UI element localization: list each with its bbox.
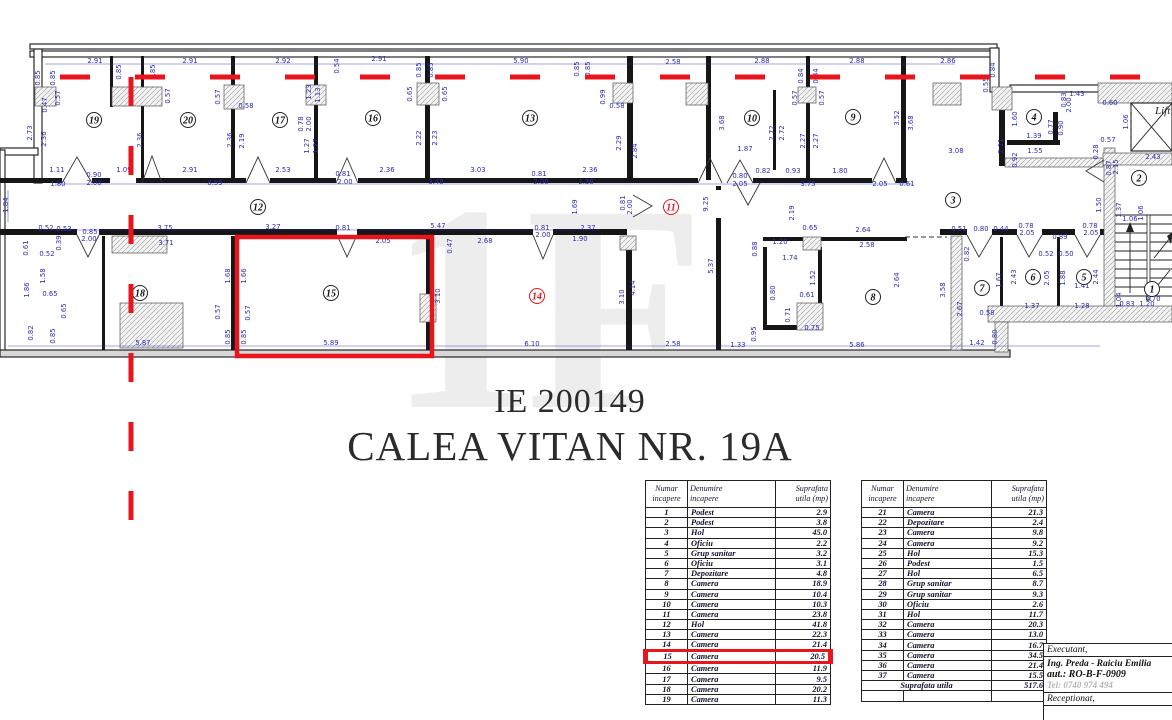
- table-cell: 21.3: [992, 508, 1047, 518]
- table-cell: Podest: [904, 558, 992, 568]
- dimension-label: 1.60: [1011, 111, 1019, 126]
- table-row: 8Camera18.9: [646, 579, 831, 589]
- table-row: 29Grup sanitar9.3: [862, 589, 1047, 599]
- table-cell: 3: [646, 528, 688, 538]
- dimension-label: 1.66: [240, 268, 248, 283]
- table-cell: 36: [862, 660, 904, 670]
- table-cell: 2.6: [992, 599, 1047, 609]
- table-cell: Camera: [688, 640, 776, 651]
- dimension-label: 2.05: [872, 180, 887, 188]
- dimension-label: 0.71: [784, 307, 792, 322]
- dimension-label: 2.73: [26, 125, 34, 140]
- total-row: Suprafata utila517.6: [862, 681, 1047, 691]
- room-number-label: 13: [525, 113, 535, 124]
- dimension-label: 1.69: [571, 199, 579, 214]
- table-cell: 34.5: [992, 650, 1047, 660]
- table-row: 22Depozitare2.4: [862, 518, 1047, 528]
- dimension-label: 0.57: [164, 88, 172, 103]
- table-cell: 7: [646, 569, 688, 579]
- total-label: Suprafata utila: [862, 681, 992, 691]
- dimension-label: 2.36: [379, 166, 394, 174]
- dimension-label: 2.15: [1112, 159, 1120, 174]
- dimension-label: 0.80: [769, 285, 777, 300]
- dimension-label: 0.60: [1102, 99, 1117, 107]
- dimension-label: 5.37: [707, 258, 715, 273]
- table-cell: 5: [646, 548, 688, 558]
- dimension-label: 0.85: [573, 61, 581, 76]
- table-cell: 8.7: [992, 579, 1047, 589]
- table-row: 23Camera9.8: [862, 528, 1047, 538]
- dimension-label: 6.10: [524, 340, 539, 348]
- table-row: 21Camera21.3: [862, 508, 1047, 518]
- table-cell: 4.8: [776, 569, 831, 579]
- table-row: 24Camera9.2: [862, 538, 1047, 548]
- table-row: 34Camera16.7: [862, 640, 1047, 650]
- dimension-label: 3.68: [907, 115, 915, 130]
- table-cell: 13: [646, 630, 688, 640]
- dimension-label: 2.91: [182, 57, 197, 65]
- lift-label: Lift: [1154, 105, 1171, 117]
- table-cell: 12: [646, 620, 688, 630]
- table-cell: 14: [646, 640, 688, 651]
- dimension-label: 0.93: [785, 167, 800, 175]
- dimension-label: 0.82: [755, 167, 770, 175]
- dimension-label: 5.90: [513, 57, 528, 65]
- table-cell: 11.3: [776, 694, 831, 704]
- table-cell: 23: [862, 528, 904, 538]
- table-cell: 45.0: [776, 528, 831, 538]
- room-number-label: 15: [326, 288, 336, 299]
- table-cell: 11.7: [992, 609, 1047, 619]
- dimension-label: 2.58: [859, 241, 874, 249]
- dimension-label: 0.44: [993, 225, 1008, 233]
- table-cell: Hol: [688, 620, 776, 630]
- table-cell: 32: [862, 620, 904, 630]
- dimension-label: 0.52: [1038, 250, 1053, 258]
- table-cell: 18: [646, 684, 688, 694]
- dimension-label: 0.88: [751, 241, 759, 256]
- dimension-label: 2.44: [1092, 269, 1100, 284]
- dimension-label: 1.27: [312, 138, 320, 153]
- table-cell: 2.4: [992, 518, 1047, 528]
- table-header-row: Numar incapereDenumire incapereSuprafata…: [646, 481, 831, 508]
- dimension-label: 1.37: [1024, 302, 1039, 310]
- dimension-label: 2.72: [768, 125, 776, 140]
- table-cell: 11: [646, 609, 688, 619]
- dimension-label: 0.61: [22, 240, 30, 255]
- dimension-label: 0.57: [791, 90, 799, 105]
- table-row-highlighted: 15Camera20.5: [646, 651, 831, 663]
- table-cell: 25: [862, 548, 904, 558]
- room-number-label: 8: [871, 292, 876, 303]
- lift-shaft: Lift: [1131, 103, 1172, 151]
- table-cell: Camera: [688, 663, 776, 674]
- dimension-label: 5.87: [135, 339, 150, 347]
- room-number-label: 2: [1136, 173, 1142, 184]
- table-cell: 3.2: [776, 548, 831, 558]
- room-number-label: 9: [851, 112, 856, 123]
- table-row: 30Oficiu2.6: [862, 599, 1047, 609]
- receptionat-label: Receptionat,: [1044, 693, 1172, 706]
- dimension-label: 2.43: [1145, 153, 1160, 161]
- dimension-label: 0.65: [60, 303, 68, 318]
- dimension-label: 0.84: [989, 62, 997, 77]
- dimension-label: 3.10: [618, 289, 626, 304]
- table-cell: 4: [646, 538, 688, 548]
- column-header: Suprafata utila (mp): [776, 481, 831, 508]
- dimension-label: 0.77: [1047, 119, 1055, 134]
- dimension-label: 1.42: [969, 339, 984, 347]
- dimension-label: 2.67: [956, 301, 964, 316]
- dimension-label: 2.36: [136, 132, 144, 147]
- table-cell: Hol: [904, 569, 992, 579]
- dimension-label: 2.27: [799, 133, 807, 148]
- dimension-label: 2.22: [415, 130, 423, 145]
- dimension-label: 2.36: [40, 131, 48, 146]
- dimension-label: 0.75: [804, 324, 819, 332]
- dimension-label: 0.82: [27, 325, 35, 340]
- dimension-label: 1.67: [995, 272, 1003, 287]
- dimension-label: 0.65: [406, 86, 414, 101]
- room-number-label: 11: [666, 202, 675, 213]
- dimension-label: 4.14: [629, 280, 637, 295]
- table-row: 10Camera10.3: [646, 599, 831, 609]
- table-cell: 18.9: [776, 579, 831, 589]
- dimension-label: 2.19: [238, 133, 246, 148]
- dimension-label: 0.52: [38, 224, 53, 232]
- dimension-label: 3.52: [893, 110, 901, 125]
- dimension-label: 0.85: [240, 329, 248, 344]
- dimension-label: 0.80: [973, 225, 988, 233]
- dimension-label: 2.00: [1065, 97, 1073, 112]
- table-cell: 1: [646, 508, 688, 518]
- total-value: 517.6: [992, 681, 1047, 691]
- table-cell: 30: [862, 599, 904, 609]
- dimension-label: 1.06: [1122, 114, 1130, 129]
- table-cell: 9.8: [992, 528, 1047, 538]
- dimension-label: 3.27: [265, 223, 280, 231]
- dimension-label: 0.50: [1058, 250, 1073, 258]
- dimension-label: 1.27: [303, 138, 311, 153]
- table-cell: 35: [862, 650, 904, 660]
- dimension-label: 0.85: [49, 70, 57, 85]
- table-cell: 2.9: [776, 508, 831, 518]
- table-cell: Camera: [904, 650, 992, 660]
- dimension-label: 2.37: [580, 224, 595, 232]
- table-cell: 37: [862, 671, 904, 681]
- table-row: 32Camera20.3: [862, 620, 1047, 630]
- dimension-label: 1.28: [1074, 302, 1089, 310]
- dimension-label: 2.36: [582, 166, 597, 174]
- table-cell: 2.2: [776, 538, 831, 548]
- column-header: Denumire incapere: [688, 481, 776, 508]
- dimension-label: 1.43: [1069, 90, 1084, 98]
- dimension-label: 1.90: [572, 235, 587, 243]
- table-cell: Camera: [904, 671, 992, 681]
- dimension-label: 0.57: [244, 305, 252, 320]
- table-cell: 20.3: [992, 620, 1047, 630]
- dimension-label: 0.61: [799, 291, 814, 299]
- column-header: Suprafata utila (mp): [992, 481, 1047, 508]
- table-row: 19Camera11.3: [646, 694, 831, 704]
- table-row: 35Camera34.5: [862, 650, 1047, 660]
- dimension-label: 2.00: [305, 116, 313, 131]
- dimension-label: 1.50: [1095, 197, 1103, 212]
- table-cell: 2: [646, 518, 688, 528]
- dimension-label: 0.54: [333, 58, 341, 73]
- table-row: 11Camera23.8: [646, 609, 831, 619]
- table-cell: 15.5: [992, 671, 1047, 681]
- dimension-label: 5.89: [323, 339, 338, 347]
- table-cell: Oficiu: [904, 599, 992, 609]
- table-cell: Camera: [904, 630, 992, 640]
- dimension-label: 0.47: [41, 97, 49, 112]
- table-cell: 27: [862, 569, 904, 579]
- table-cell: 10: [646, 599, 688, 609]
- table-row: 2Podest3.8: [646, 518, 831, 528]
- dimension-label: 1.84: [2, 197, 10, 212]
- dimension-label: 2.88: [849, 57, 864, 65]
- dimension-label: 2.00: [86, 179, 101, 187]
- dimension-label: 0.52: [39, 250, 54, 258]
- table-row: 7Depozitare4.8: [646, 569, 831, 579]
- table-cell: Hol: [904, 548, 992, 558]
- dimension-label: 0.99: [599, 89, 607, 104]
- dimension-label: 5.86: [849, 341, 864, 349]
- dimension-label: 0.84: [797, 68, 805, 83]
- table-row: 25Hol15.3: [862, 548, 1047, 558]
- dimension-label: 0.57: [818, 90, 826, 105]
- dimension-label: 1.55: [1027, 147, 1042, 155]
- room-number-label: 6: [1031, 272, 1036, 283]
- phone-number: Tel: 0740 974 494: [1044, 680, 1172, 693]
- table-cell: 6.5: [992, 569, 1047, 579]
- table-cell: 9.5: [776, 674, 831, 684]
- dimension-label: 3.75: [800, 180, 815, 188]
- dimension-label: 0.28: [1092, 144, 1100, 159]
- dimension-label: 2.19: [788, 205, 796, 220]
- address-title: CALEA VITAN NR. 19A: [295, 422, 845, 470]
- dimension-label: 0.92: [1011, 152, 1019, 167]
- dimension-label: 3.48: [428, 178, 443, 186]
- table-cell: 34: [862, 640, 904, 650]
- table-cell: 1.5: [992, 558, 1047, 568]
- dimension-label: 2.27: [812, 133, 820, 148]
- dimension-label: 2.91: [371, 55, 386, 63]
- table-row: 31Hol11.7: [862, 609, 1047, 619]
- dimension-label: 0.82: [963, 246, 971, 261]
- dimension-label: 0.80: [732, 172, 747, 180]
- dimension-label: 2.00: [626, 199, 634, 214]
- dimension-label: 1.74: [782, 254, 797, 262]
- table-cell: 8: [646, 579, 688, 589]
- room-number-label: 5: [1082, 272, 1087, 283]
- table-cell: Camera: [904, 528, 992, 538]
- table-cell: 6: [646, 558, 688, 568]
- table-cell: Hol: [904, 609, 992, 619]
- room-number-label: 10: [747, 113, 757, 124]
- room-number-label: 20: [182, 115, 193, 126]
- dimension-label: 2.05: [732, 180, 747, 188]
- dimension-label: 1.23: [305, 84, 313, 99]
- table-cell: 29: [862, 589, 904, 599]
- table-cell: 17: [646, 674, 688, 684]
- dimension-label: 0.58: [609, 102, 624, 110]
- table-cell: 9: [646, 589, 688, 599]
- dimension-label: 2.11: [997, 138, 1005, 153]
- dimension-label: 0.57: [54, 90, 62, 105]
- column-header: Numar incapere: [646, 481, 688, 508]
- dimension-label: 2.05: [1019, 229, 1034, 237]
- table-cell: Oficiu: [688, 558, 776, 568]
- table-cell: 13.0: [992, 630, 1047, 640]
- table-cell: Grup sanitar: [904, 579, 992, 589]
- dimension-label: 1.33: [730, 341, 745, 349]
- dimension-label: 2.68: [477, 237, 492, 245]
- room-number-label: 4: [1031, 112, 1037, 123]
- table-cell: 19: [646, 694, 688, 704]
- dimension-label: 1.58: [39, 268, 47, 283]
- authorization-number: aut.: RO-B-F-0909: [1044, 669, 1172, 680]
- dimension-label: 2.72: [778, 125, 786, 140]
- dimension-label: 0.58: [238, 102, 253, 110]
- table-row: 36Camera21.4: [862, 660, 1047, 670]
- dimension-label: 2.53: [275, 166, 290, 174]
- room-number-label: 19: [89, 115, 99, 126]
- floor-plan-document: 1F: [0, 0, 1172, 720]
- table-cell: 28: [862, 579, 904, 589]
- dimension-label: 2.64: [893, 272, 901, 287]
- table-row: 18Camera20.2: [646, 684, 831, 694]
- dimension-label: 0.85: [427, 62, 435, 77]
- dimension-label: 0.90: [1057, 120, 1065, 135]
- dimension-label: 0.55: [982, 77, 990, 92]
- table-cell: 21.4: [992, 660, 1047, 670]
- room-number-label: 1: [1150, 284, 1155, 295]
- dimension-label: 2.29: [615, 135, 623, 150]
- table-cell: 20.5: [776, 651, 831, 663]
- dimension-label: 2.88: [754, 57, 769, 65]
- dimension-label: 0.65: [802, 224, 817, 232]
- table-row: 13Camera22.3: [646, 630, 831, 640]
- dimension-label: 0.57: [214, 89, 222, 104]
- table-cell: Depozitare: [688, 569, 776, 579]
- table-cell: 22.3: [776, 630, 831, 640]
- table-cell: [992, 691, 1047, 701]
- room-number-label: 16: [368, 113, 378, 124]
- executant-label: Executant,: [1044, 644, 1172, 657]
- table-row: 16Camera11.9: [646, 663, 831, 674]
- table-cell: Oficiu: [688, 538, 776, 548]
- dimension-label: 1.86: [23, 282, 31, 297]
- empty-row: [862, 691, 1047, 701]
- table-cell: 33: [862, 630, 904, 640]
- dimension-label: 2.05: [1043, 270, 1051, 285]
- room-table-left: Numar incapereDenumire incapereSuprafata…: [643, 480, 833, 705]
- dimension-label: 3.71: [158, 239, 173, 247]
- table-row: 14Camera21.4: [646, 640, 831, 651]
- dimension-label: 3.10: [434, 288, 442, 303]
- dimension-label: 1.80: [832, 167, 847, 175]
- table-cell: 41.8: [776, 620, 831, 630]
- dimension-label: 2.00: [81, 235, 96, 243]
- table-cell: Camera: [688, 579, 776, 589]
- dimension-label: 0.90: [86, 171, 101, 179]
- dimension-label: 3.68: [718, 115, 726, 130]
- dimension-label: 1.11: [49, 166, 64, 174]
- dimension-label: 0.95: [750, 326, 758, 341]
- dimension-label: 0.53: [56, 225, 71, 233]
- dimension-label: 2.00: [535, 231, 550, 239]
- room-number-label: 14: [532, 291, 542, 302]
- table-cell: 15.3: [992, 548, 1047, 558]
- table-cell: 10.4: [776, 589, 831, 599]
- table-row: 4Oficiu2.2: [646, 538, 831, 548]
- table-row: 1Podest2.9: [646, 508, 831, 518]
- dimension-label: 0.83: [1119, 300, 1134, 308]
- table-cell: [904, 691, 992, 701]
- dimension-label: 0.47: [446, 238, 454, 253]
- table-cell: 21.4: [776, 640, 831, 651]
- dimension-label: 0.85: [415, 62, 423, 77]
- dimension-label: 1.80: [50, 180, 65, 188]
- table-cell: Camera: [688, 674, 776, 684]
- dimension-label: 0.81: [531, 170, 546, 178]
- dimension-label: 1.87: [737, 145, 752, 153]
- dimension-label: 5.47: [430, 222, 445, 230]
- dimension-label: 2.92: [275, 57, 290, 65]
- dimension-label: 2.58: [665, 58, 680, 66]
- dimension-label: 1.20: [772, 238, 787, 246]
- table-cell: 16.7: [992, 640, 1047, 650]
- table-cell: Camera: [904, 538, 992, 548]
- table-row: 3Hol45.0: [646, 528, 831, 538]
- dimension-label: 0.85: [34, 70, 42, 85]
- dimension-label: 2.23: [431, 130, 439, 145]
- table-cell: 24: [862, 538, 904, 548]
- dimension-label: 0.78: [297, 116, 305, 131]
- table-cell: Camera: [688, 694, 776, 704]
- table-cell: 3.1: [776, 558, 831, 568]
- signature-block: Executant, Ing. Preda - Raiciu Emilia au…: [1043, 643, 1172, 720]
- table-cell: Camera: [904, 660, 992, 670]
- table-cell: Camera: [688, 589, 776, 599]
- dimension-label: 0.89: [1052, 233, 1067, 241]
- table-cell: Camera: [688, 630, 776, 640]
- dimension-label: 1.39: [1026, 132, 1041, 140]
- dimension-label: 1.88: [1059, 270, 1067, 285]
- dimension-label: 2.91: [182, 166, 197, 174]
- dimension-label: 2.64: [855, 226, 870, 234]
- table-cell: 31: [862, 609, 904, 619]
- table-cell: 15: [646, 651, 688, 663]
- table-header-row: Numar incapereDenumire incapereSuprafata…: [862, 481, 1047, 508]
- dimension-label: 3.58: [939, 282, 947, 297]
- table-cell: 26: [862, 558, 904, 568]
- dimension-label: 1.68: [224, 268, 232, 283]
- room-number-label: 18: [135, 288, 145, 299]
- room-number-label: 3: [950, 195, 956, 206]
- column-header: Denumire incapere: [904, 481, 992, 508]
- dimension-label: 1.13: [314, 87, 322, 102]
- dimension-label: 1.06: [1137, 205, 1145, 220]
- dimension-label: 0.85: [49, 328, 57, 343]
- engineer-name: Ing. Preda - Raiciu Emilia: [1044, 657, 1172, 669]
- table-row: 26Podest1.5: [862, 558, 1047, 568]
- dimension-label: 2.00: [337, 178, 352, 186]
- dimension-label: 2.38: [578, 178, 593, 186]
- dimension-label: 0.85: [115, 64, 123, 79]
